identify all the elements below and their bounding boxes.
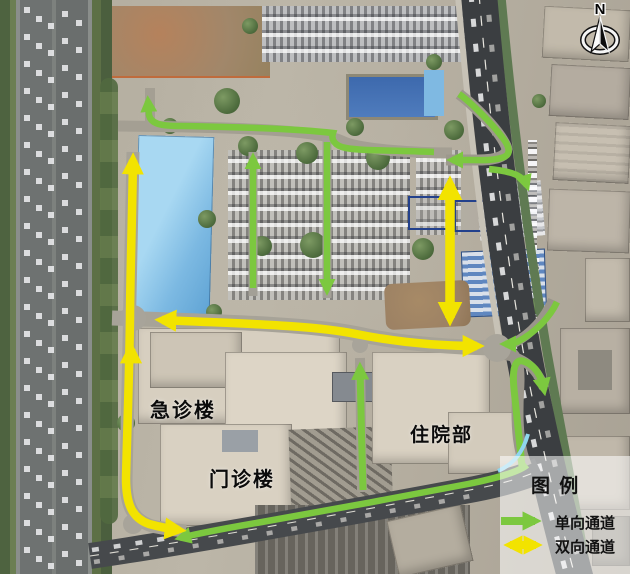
legend-one-way-arrow bbox=[498, 511, 554, 531]
legend-two-way-arrow bbox=[496, 535, 556, 555]
compass-needle-east bbox=[600, 16, 609, 52]
compass-label: N bbox=[595, 1, 606, 18]
compass-needle-west bbox=[591, 16, 600, 52]
satellite-map: 急诊楼 门诊楼 住院部 N 图 例 单向通道 双向通道 bbox=[0, 0, 630, 574]
label-inpatient-building: 住院部 bbox=[410, 420, 473, 447]
route-exit-northwest bbox=[148, 101, 434, 152]
legend-one-way-label: 单向通道 bbox=[555, 512, 615, 533]
route-inner-drive-northbound bbox=[360, 368, 363, 490]
label-outpatient-building: 门诊楼 bbox=[209, 463, 275, 492]
legend-title: 图 例 bbox=[531, 471, 580, 498]
legend-two-way-label: 双向通道 bbox=[555, 536, 615, 557]
compass-north: N bbox=[578, 0, 624, 62]
label-emergency-building: 急诊楼 bbox=[150, 394, 216, 423]
